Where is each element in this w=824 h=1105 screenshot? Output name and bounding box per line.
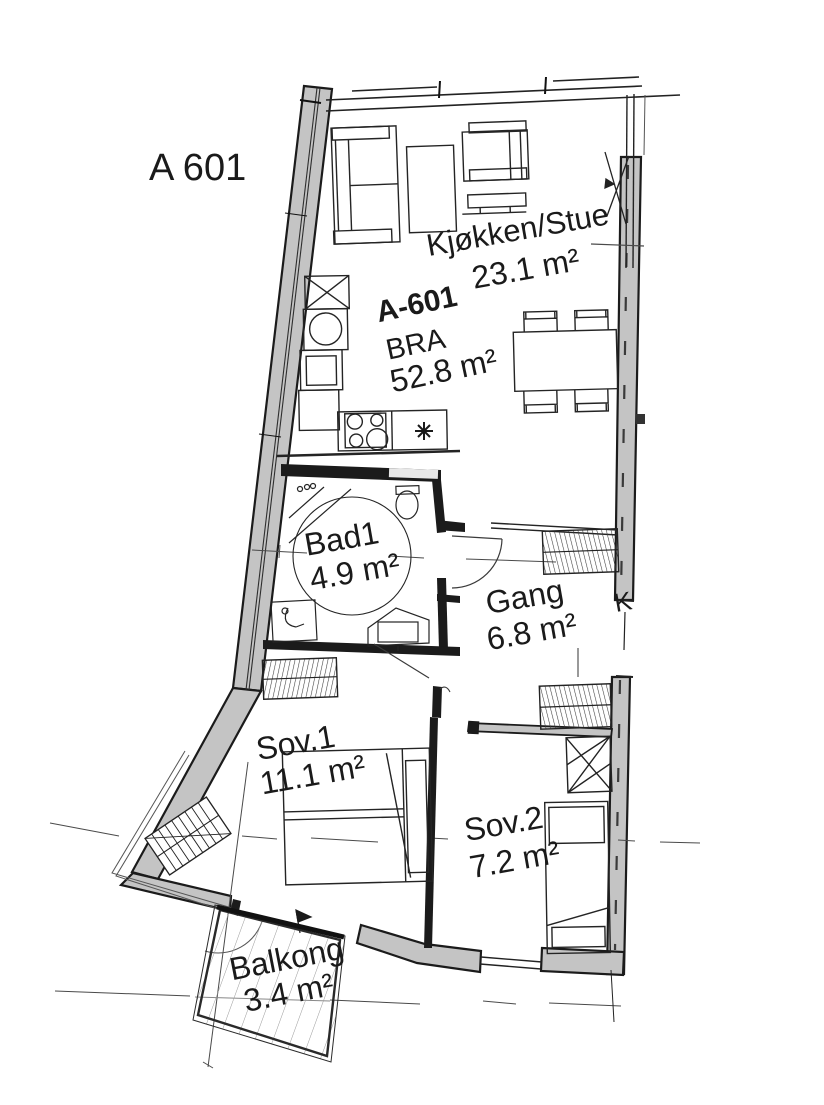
svg-text:A 601: A 601: [149, 147, 246, 189]
svg-text:A-601: A-601: [373, 280, 460, 329]
